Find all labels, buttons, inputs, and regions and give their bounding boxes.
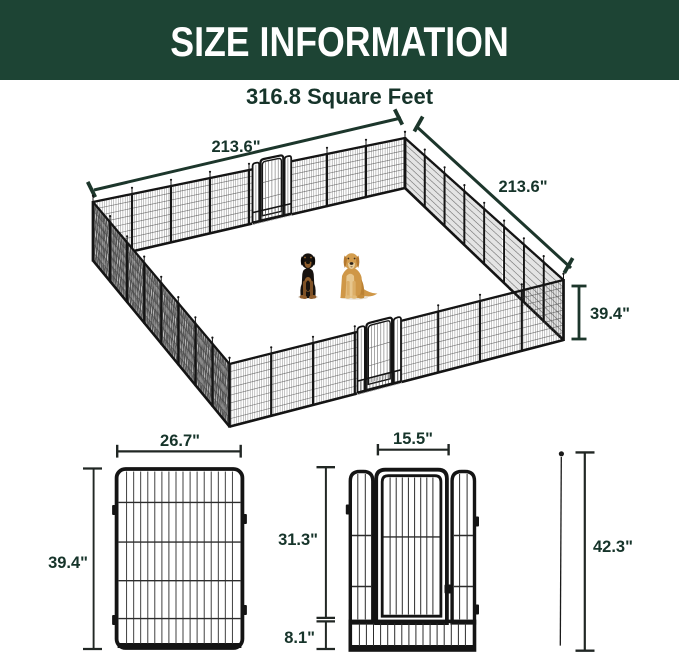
svg-text:26.7": 26.7" bbox=[160, 432, 200, 450]
svg-text:8.1": 8.1" bbox=[284, 629, 315, 647]
svg-text:213.6": 213.6" bbox=[211, 138, 260, 156]
svg-text:39.4": 39.4" bbox=[48, 554, 88, 572]
svg-text:15.5": 15.5" bbox=[393, 430, 433, 448]
svg-text:39.4": 39.4" bbox=[590, 305, 630, 323]
svg-text:213.6": 213.6" bbox=[498, 178, 547, 196]
svg-text:31.3": 31.3" bbox=[278, 531, 318, 549]
svg-text:42.3": 42.3" bbox=[593, 538, 633, 556]
